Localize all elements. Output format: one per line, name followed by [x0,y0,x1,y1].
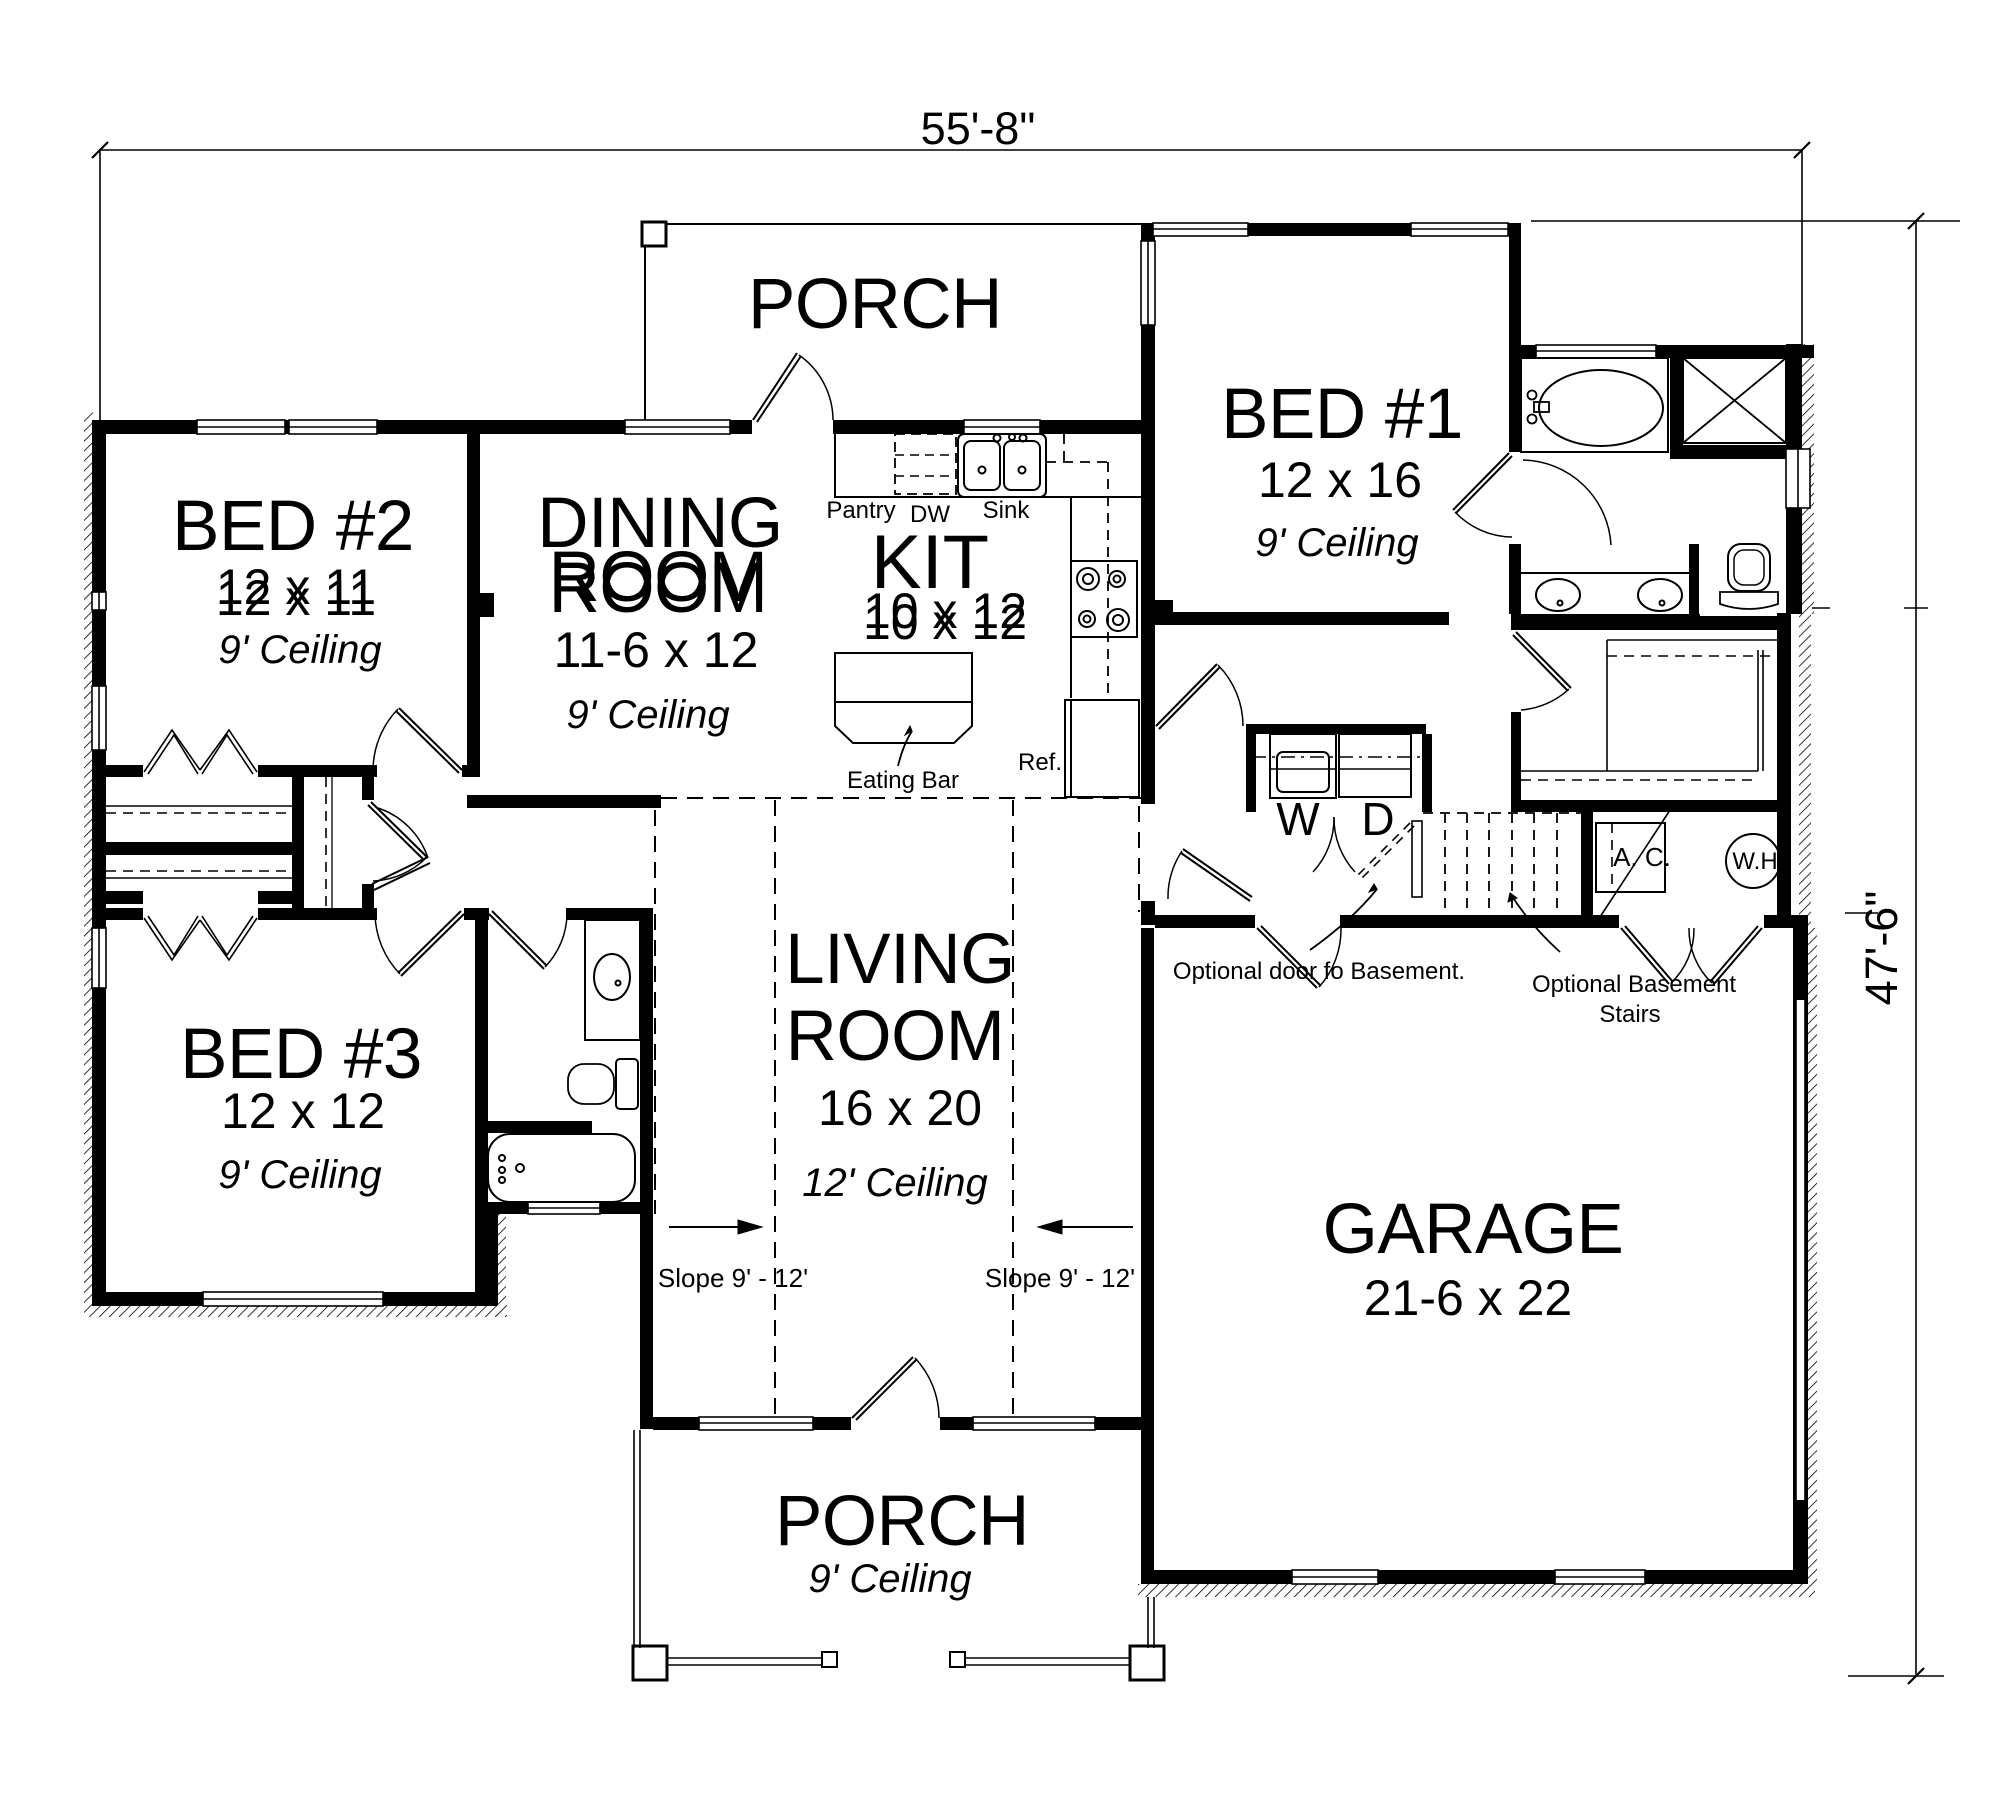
svg-text:ROOM: ROOM [549,549,768,628]
svg-text:47'-6": 47'-6" [1856,891,1907,1006]
svg-text:9' Ceiling: 9' Ceiling [218,1153,381,1197]
svg-text:Stairs: Stairs [1599,1001,1660,1028]
svg-text:BED #1: BED #1 [1221,375,1463,454]
svg-text:12 x 16: 12 x 16 [1258,452,1422,508]
svg-text:W: W [1276,793,1320,845]
svg-text:55'-8": 55'-8" [921,103,1036,154]
svg-text:Pantry: Pantry [826,497,895,524]
svg-text:Slope 9' - 12': Slope 9' - 12' [985,1263,1135,1293]
svg-text:Optional Basement: Optional Basement [1532,971,1736,998]
svg-text:LIVING: LIVING [785,920,1015,999]
svg-text:Optional door fo Basement.: Optional door fo Basement. [1173,958,1465,985]
svg-text:11-6 x 12: 11-6 x 12 [554,622,759,678]
svg-text:BED #2: BED #2 [172,487,414,566]
svg-text:16 x 20: 16 x 20 [818,1080,982,1136]
svg-text:12 x 11: 12 x 11 [216,570,376,626]
svg-text:GARAGE: GARAGE [1323,1190,1624,1269]
svg-text:ROOM: ROOM [786,997,1005,1076]
svg-text:10 x 12: 10 x 12 [863,594,1027,650]
svg-text:Sink: Sink [983,497,1031,524]
svg-text:W.H: W.H [1732,848,1777,875]
svg-text:PORCH: PORCH [748,265,1002,344]
svg-text:Ref.: Ref. [1018,749,1062,776]
svg-text:Slope 9' - 12': Slope 9' - 12' [658,1263,808,1293]
svg-text:DW: DW [910,501,950,528]
svg-text:9' Ceiling: 9' Ceiling [566,693,729,737]
svg-text:9' Ceiling: 9' Ceiling [808,1557,971,1601]
svg-text:9' Ceiling: 9' Ceiling [1255,521,1418,565]
svg-text:A. C.: A. C. [1613,842,1671,872]
svg-text:12 x 12: 12 x 12 [221,1083,385,1139]
svg-text:Eating Bar: Eating Bar [847,767,959,794]
svg-text:PORCH: PORCH [775,1482,1029,1561]
svg-text:9' Ceiling: 9' Ceiling [218,628,381,672]
svg-text:21-6 x 22: 21-6 x 22 [1364,1270,1572,1326]
svg-text:D: D [1361,793,1394,845]
svg-text:12' Ceiling: 12' Ceiling [802,1161,988,1205]
